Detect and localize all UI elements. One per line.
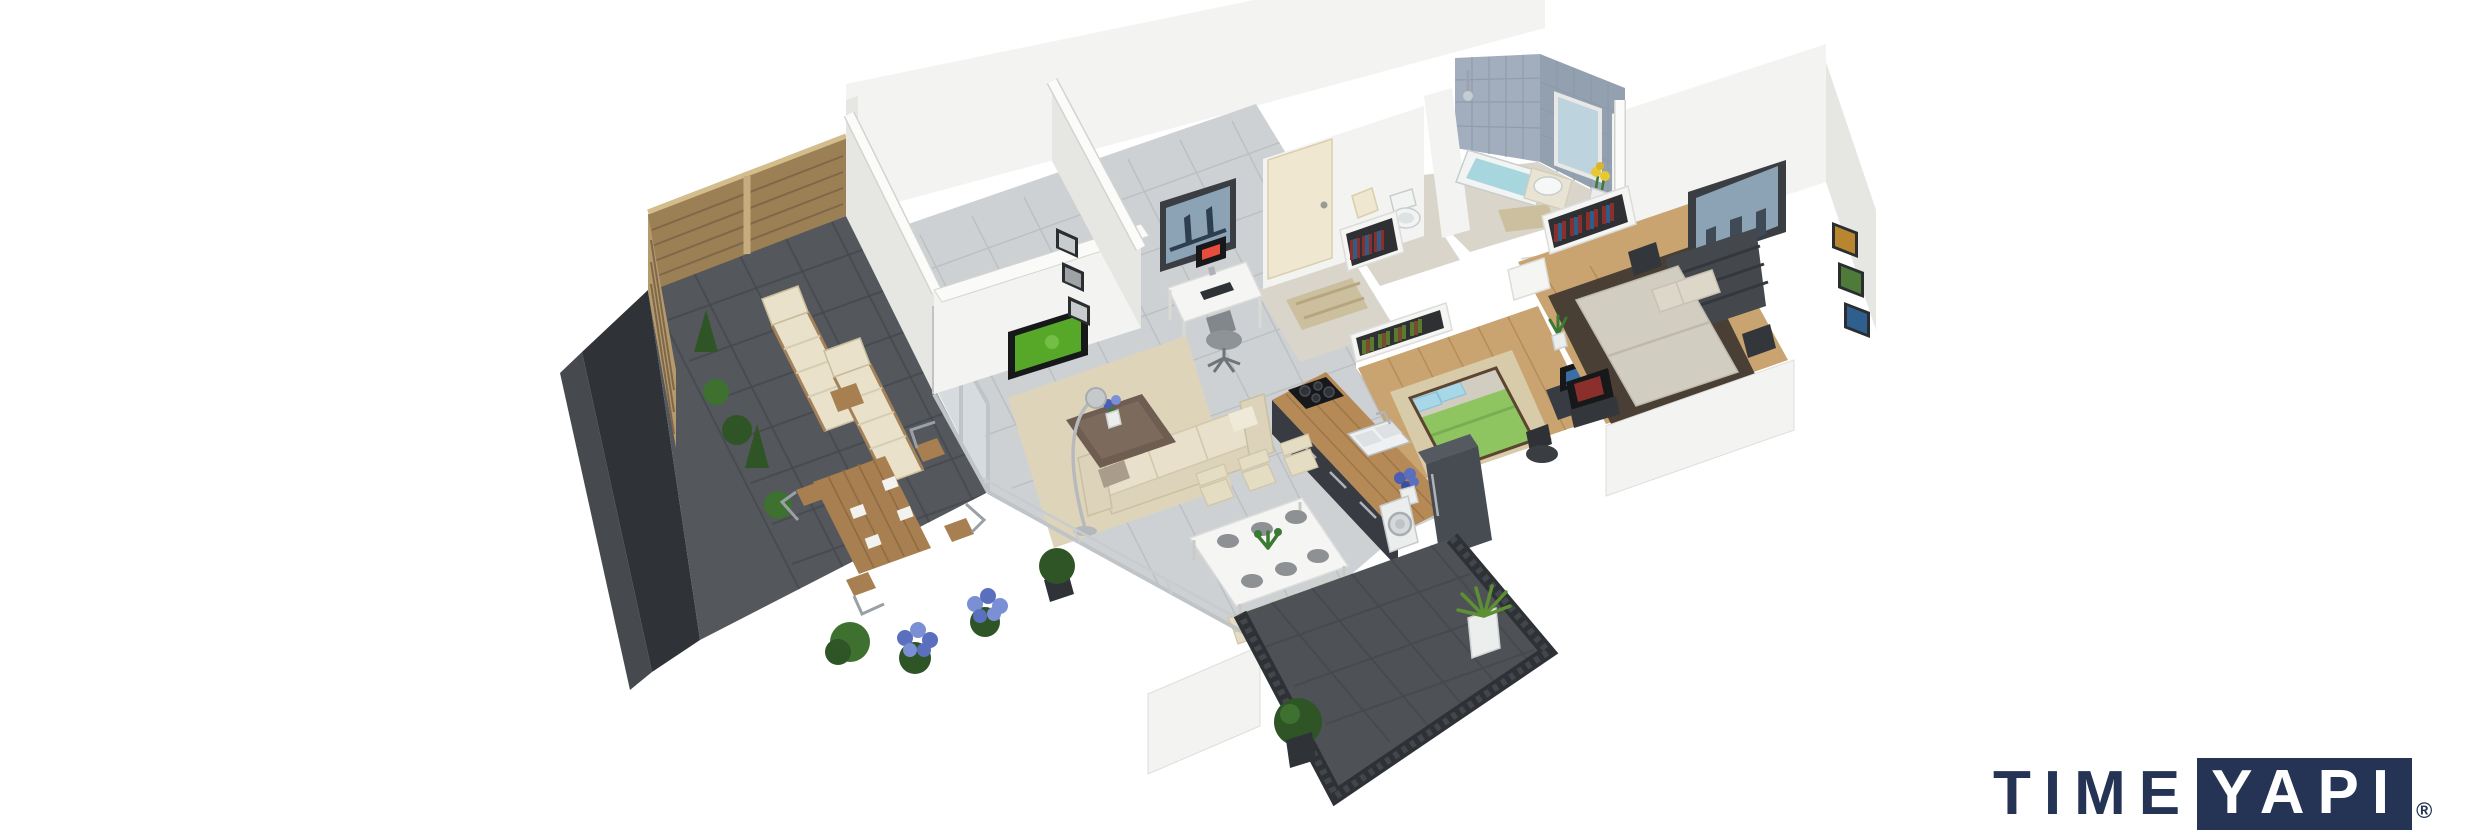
hydrangea-1 xyxy=(897,622,938,674)
floor-plan-render xyxy=(0,0,2480,835)
timeyapi-logo: TIME YAPI ® xyxy=(1993,758,2432,830)
door-handle xyxy=(1321,202,1328,209)
floor-plan-canvas: TIME YAPI ® xyxy=(0,0,2480,835)
logo-yapi-box: YAPI xyxy=(2197,758,2412,830)
balcony-boxwood xyxy=(1274,698,1322,768)
logo-time-text: TIME xyxy=(1993,763,2193,825)
bathroom-mirror xyxy=(1556,94,1600,180)
hydrangea-2 xyxy=(967,588,1008,637)
framed-picture-blue xyxy=(1844,302,1870,338)
front-wall-skirt xyxy=(1148,646,1260,774)
logo-yapi-text: YAPI xyxy=(2211,758,2402,827)
entry-door xyxy=(1268,139,1332,279)
boxwood-pot xyxy=(1039,548,1075,602)
registered-trademark-icon: ® xyxy=(2416,798,2432,830)
